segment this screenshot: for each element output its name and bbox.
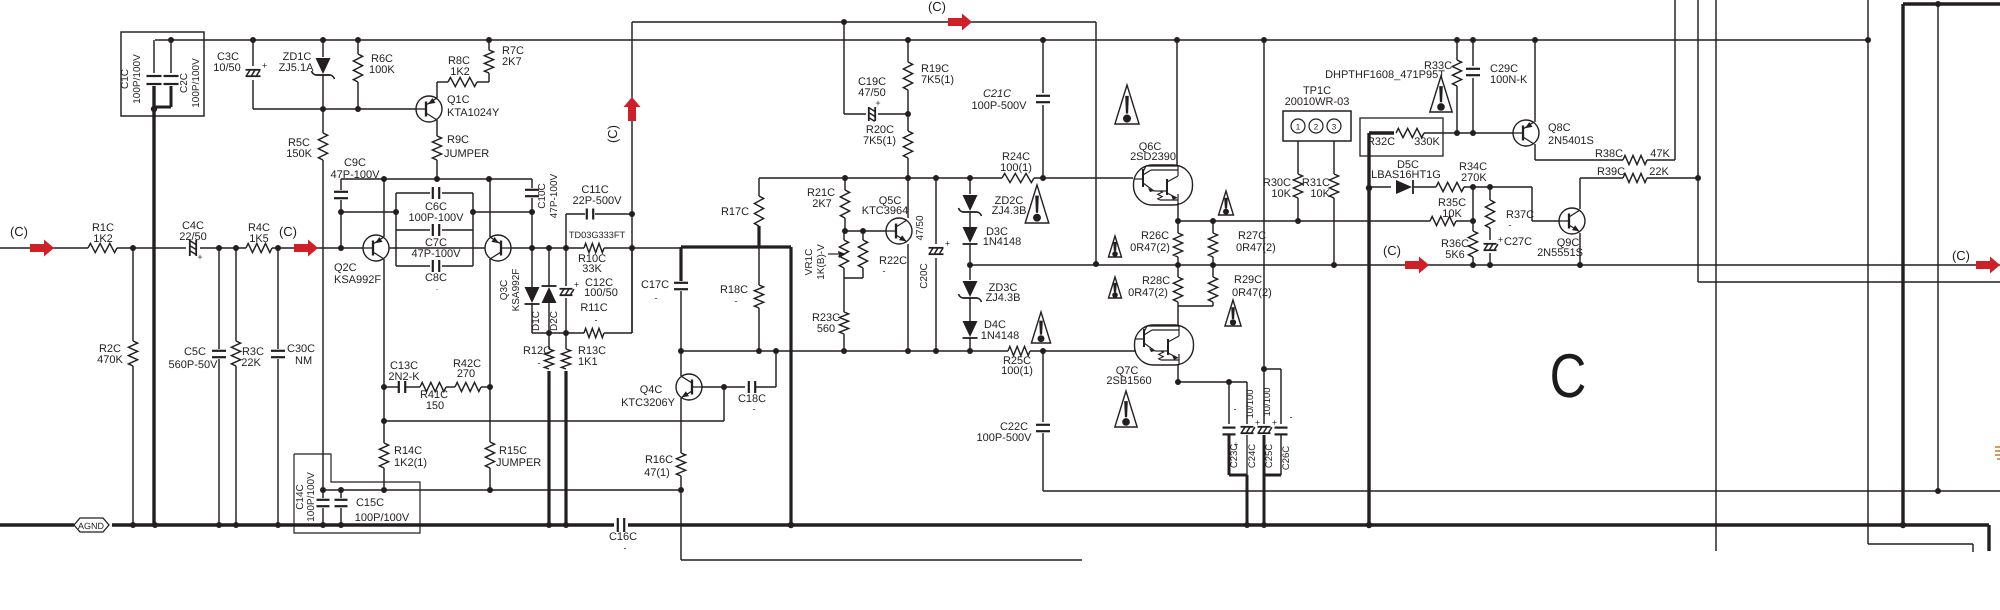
svg-text:C10C: C10C: [537, 183, 548, 209]
svg-text:100(1): 100(1): [1001, 365, 1033, 377]
svg-text:10/100: 10/100: [1262, 387, 1273, 416]
svg-text:3: 3: [1332, 123, 1337, 132]
svg-text:R14C: R14C: [394, 445, 422, 457]
svg-text:TD03G333FT: TD03G333FT: [569, 230, 626, 240]
svg-text:1K5: 1K5: [249, 233, 269, 245]
svg-text:-: -: [655, 293, 658, 303]
svg-text:1K1: 1K1: [578, 356, 598, 368]
svg-text:KTC3964: KTC3964: [862, 205, 908, 217]
svg-text:JUMPER: JUMPER: [496, 457, 541, 469]
svg-text:Q4C: Q4C: [640, 384, 663, 396]
svg-text:47(1): 47(1): [644, 467, 670, 479]
svg-text:47P-100V: 47P-100V: [412, 248, 462, 260]
svg-text:1K2: 1K2: [450, 66, 470, 78]
svg-text:2: 2: [1314, 123, 1319, 132]
svg-text:NM: NM: [295, 355, 312, 367]
svg-text:VR1C: VR1C: [804, 249, 815, 276]
svg-text:0R47(2): 0R47(2): [1128, 287, 1168, 299]
svg-text:2SB1560: 2SB1560: [1106, 375, 1151, 387]
svg-text:2N5401S: 2N5401S: [1548, 135, 1594, 147]
svg-text:(C): (C): [279, 224, 297, 239]
svg-text:0R47(2): 0R47(2): [1232, 287, 1272, 299]
svg-text:22K: 22K: [1649, 166, 1669, 178]
svg-text:Q2C: Q2C: [334, 262, 357, 274]
svg-text:C24C: C24C: [1247, 444, 1258, 468]
svg-text:C14C: C14C: [295, 484, 306, 510]
svg-text:C16C: C16C: [609, 531, 637, 543]
svg-text:R11C: R11C: [580, 302, 607, 314]
svg-text:C20C: C20C: [919, 263, 930, 289]
svg-text:+: +: [1234, 440, 1239, 449]
svg-text:D1C: D1C: [531, 311, 542, 331]
svg-text:100P/100V: 100P/100V: [355, 512, 410, 524]
svg-text:D2C: D2C: [549, 311, 560, 331]
svg-text:2N5551S: 2N5551S: [1537, 247, 1583, 259]
svg-text:R17C: R17C: [721, 206, 749, 218]
svg-text:C26C: C26C: [1281, 446, 1292, 470]
svg-text:R27C: R27C: [1238, 230, 1266, 242]
svg-text:+: +: [574, 280, 579, 290]
svg-text:R28C: R28C: [1142, 275, 1170, 287]
svg-text:10K: 10K: [1271, 188, 1291, 200]
svg-text:-: -: [883, 266, 886, 276]
svg-text:5K6: 5K6: [1445, 249, 1465, 261]
svg-text:KTA1024Y: KTA1024Y: [447, 107, 500, 119]
svg-text:R15C: R15C: [499, 445, 527, 457]
svg-text:-: -: [753, 404, 756, 414]
svg-text:100P/100V: 100P/100V: [306, 472, 317, 522]
svg-text:AGND: AGND: [78, 521, 105, 531]
svg-text:-: -: [1290, 412, 1293, 422]
svg-text:KSA992F: KSA992F: [334, 274, 381, 286]
svg-text:100P/100V: 100P/100V: [191, 58, 202, 108]
svg-text:C1C: C1C: [120, 69, 131, 89]
svg-text:R29C: R29C: [1234, 274, 1262, 286]
svg-text:DHPTHF1608_471P95T: DHPTHF1608_471P95T: [1325, 69, 1445, 81]
svg-text:+: +: [945, 239, 950, 249]
svg-text:47P-100V: 47P-100V: [549, 173, 560, 218]
svg-text:C9C: C9C: [344, 157, 366, 169]
svg-text:C5C: C5C: [184, 346, 206, 358]
svg-text:ZJ4.3B: ZJ4.3B: [986, 292, 1021, 304]
svg-text:100/50: 100/50: [584, 287, 618, 299]
svg-text:100N-K: 100N-K: [1490, 74, 1528, 86]
svg-text:C8C: C8C: [425, 272, 447, 284]
svg-text:100P-500V: 100P-500V: [971, 100, 1027, 112]
svg-text:-: -: [1509, 220, 1512, 230]
svg-text:-: -: [624, 543, 627, 553]
svg-text:100(1): 100(1): [1000, 162, 1032, 174]
svg-text:R18C: R18C: [720, 284, 748, 296]
svg-text:R26C: R26C: [1141, 230, 1169, 242]
svg-text:7K5(1): 7K5(1): [863, 135, 896, 147]
svg-text:1K(B)-V: 1K(B)-V: [816, 244, 827, 280]
svg-text:C21C: C21C: [983, 88, 1011, 100]
svg-text:-: -: [595, 315, 598, 325]
svg-text:C15C: C15C: [356, 497, 384, 509]
svg-text:1N4148: 1N4148: [981, 330, 1020, 342]
svg-text:100K: 100K: [369, 64, 395, 76]
svg-text:1K2: 1K2: [93, 233, 113, 245]
svg-text:100P/100V: 100P/100V: [132, 54, 143, 104]
svg-text:10/50: 10/50: [213, 62, 241, 74]
svg-text:330K: 330K: [1414, 136, 1440, 148]
svg-text:·: ·: [436, 284, 439, 294]
svg-text:R32C: R32C: [1367, 136, 1395, 148]
svg-text:22/50: 22/50: [179, 231, 207, 243]
svg-text:270: 270: [457, 368, 475, 380]
svg-text:+: +: [1498, 235, 1503, 245]
svg-text:560P-50V: 560P-50V: [169, 359, 219, 371]
svg-text:-: -: [1234, 404, 1237, 414]
svg-text:C17C: C17C: [641, 279, 669, 291]
svg-text:10/100: 10/100: [1245, 389, 1256, 418]
svg-text:47/50: 47/50: [915, 215, 926, 240]
svg-text:ZJ5.1A: ZJ5.1A: [279, 62, 315, 74]
svg-text:KTC3206Y: KTC3206Y: [621, 397, 675, 409]
svg-text:R9C: R9C: [447, 134, 469, 146]
svg-text:R16C: R16C: [645, 454, 673, 466]
svg-text:ZJ4.3B: ZJ4.3B: [992, 205, 1027, 217]
svg-text:1N4148: 1N4148: [983, 236, 1022, 248]
svg-text:C2C: C2C: [179, 73, 190, 93]
svg-text:47/50: 47/50: [858, 87, 886, 99]
svg-text:Q3C: Q3C: [499, 280, 510, 301]
svg-text:R12C: R12C: [523, 345, 551, 357]
svg-text:(C): (C): [605, 125, 620, 143]
svg-text:150: 150: [426, 400, 444, 412]
svg-text:+: +: [197, 252, 202, 262]
svg-text:KSA992F: KSA992F: [511, 269, 522, 312]
svg-text:270K: 270K: [1461, 172, 1487, 184]
svg-text:C27C: C27C: [1504, 236, 1532, 248]
svg-text:(C): (C): [1383, 243, 1401, 258]
svg-text:C30C: C30C: [287, 343, 315, 355]
svg-text:20010WR-03: 20010WR-03: [1285, 96, 1350, 108]
svg-text:C: C: [1550, 342, 1587, 411]
svg-text:2N2-K: 2N2-K: [388, 371, 420, 383]
svg-text:-: -: [538, 358, 541, 368]
svg-text:560: 560: [817, 323, 835, 335]
svg-text:R39C: R39C: [1597, 166, 1625, 178]
svg-text:33K: 33K: [582, 263, 602, 275]
svg-text:R38C: R38C: [1595, 148, 1623, 160]
svg-text:7K5(1): 7K5(1): [921, 74, 954, 86]
svg-text:2SD2390: 2SD2390: [1130, 151, 1176, 163]
svg-text:22P-500V: 22P-500V: [573, 195, 623, 207]
svg-text:-: -: [735, 296, 738, 306]
svg-text:(C): (C): [1952, 248, 1970, 263]
svg-text:(C): (C): [928, 0, 946, 14]
svg-text:22K: 22K: [241, 357, 261, 369]
svg-text:JUMPER: JUMPER: [444, 148, 489, 160]
svg-text:(C): (C): [10, 224, 28, 239]
svg-text:2K7: 2K7: [502, 56, 522, 68]
svg-text:+: +: [1272, 418, 1277, 428]
svg-text:+: +: [875, 98, 880, 108]
svg-text:150K: 150K: [286, 148, 312, 160]
svg-text:100P-100V: 100P-100V: [408, 212, 464, 224]
svg-text:Q1C: Q1C: [447, 94, 470, 106]
svg-text:10K: 10K: [1310, 188, 1330, 200]
svg-text:0R47(2): 0R47(2): [1236, 242, 1276, 254]
svg-text:LBAS16HT1G: LBAS16HT1G: [1371, 169, 1441, 181]
svg-text:2K7: 2K7: [812, 198, 832, 210]
svg-text:100P-500V: 100P-500V: [976, 432, 1032, 444]
svg-text:1K2(1): 1K2(1): [394, 457, 427, 469]
svg-text:47K: 47K: [1650, 148, 1670, 160]
svg-text:Q8C: Q8C: [1548, 122, 1571, 134]
svg-text:1: 1: [1296, 123, 1301, 132]
svg-text:470K: 470K: [97, 354, 123, 366]
svg-text:C25C: C25C: [1264, 444, 1275, 468]
svg-text:+: +: [262, 61, 267, 71]
svg-text:10K: 10K: [1442, 208, 1462, 220]
svg-text:0R47(2): 0R47(2): [1130, 242, 1170, 254]
